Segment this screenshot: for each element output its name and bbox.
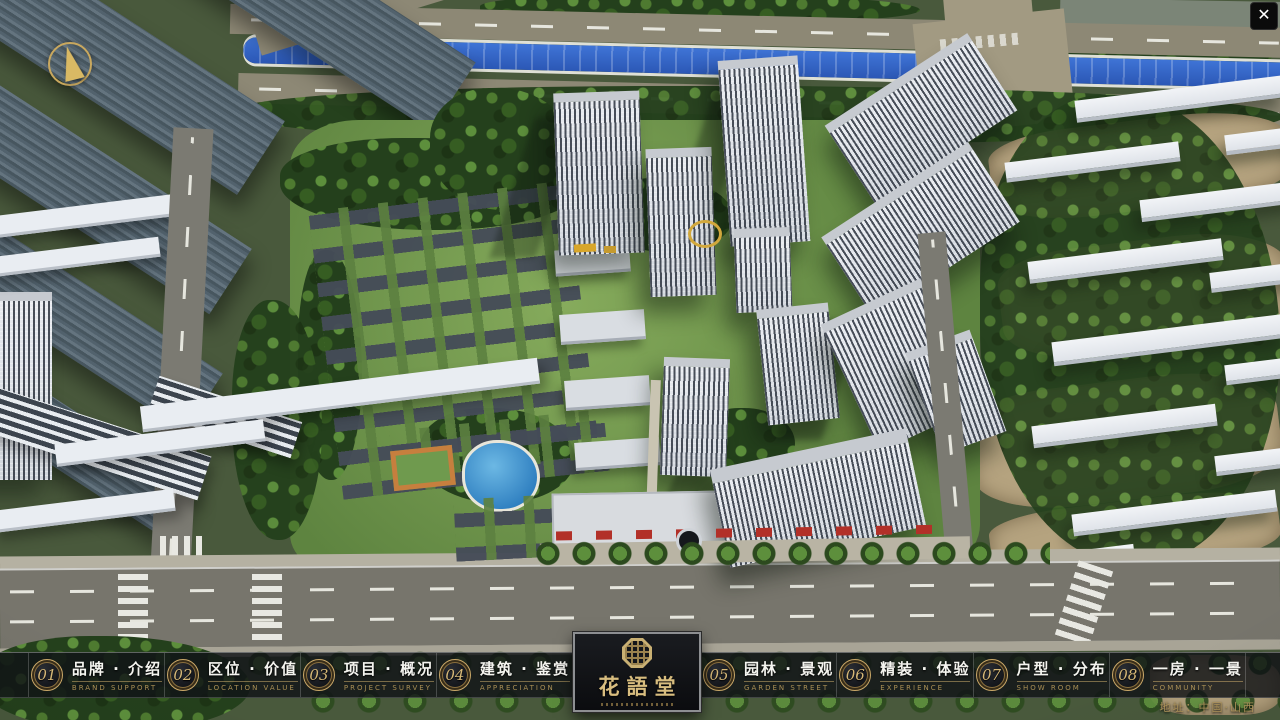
nav-number-badge: 02 (167, 659, 199, 691)
logo-seal-icon (622, 638, 652, 668)
nav-number-badge: 05 (703, 659, 735, 691)
nav-number-badge: 04 (439, 659, 471, 691)
gold-pavilion (688, 220, 722, 248)
nav-item-location-value[interactable]: 02 区位 · 价值LOCATION VALUE (165, 653, 301, 697)
nav-item-project-overview[interactable]: 03 项目 · 概况PROJECT SURVEY (301, 653, 437, 697)
nav-item-architecture-appreciation[interactable]: 04 建筑 · 鉴赏APPRECIATION (437, 653, 573, 697)
bottom-navbar: 01 品牌 · 介绍BRAND SUPPORT 02 区位 · 价值LOCATI… (0, 652, 1280, 698)
masterplan-viewport: ✕ 01 品牌 · 介绍BRAND SUPPORT 02 区位 · 价值LOCA… (0, 0, 1280, 720)
nav-number: 02 (173, 666, 192, 684)
address-text: 地址：中国·山西 (1160, 699, 1257, 715)
nav-subtitle: EXPERIENCE (880, 684, 944, 692)
logo-tagline (601, 703, 673, 706)
navbar-left-group: 01 品牌 · 介绍BRAND SUPPORT 02 区位 · 价值LOCATI… (0, 653, 573, 697)
crosswalk (160, 536, 208, 556)
mid-rise-slab (559, 309, 646, 345)
tower (718, 55, 811, 246)
nav-label: 精装 · 体验 (880, 658, 970, 682)
nav-number: 05 (710, 666, 729, 684)
nav-item-interior-experience[interactable]: 06 精装 · 体验EXPERIENCE (837, 653, 973, 697)
nav-item-room-view[interactable]: 08 一房 · 一景COMMUNITY (1110, 653, 1246, 697)
nav-number: 07 (982, 666, 1001, 684)
nav-label: 户型 · 分布 (1017, 658, 1107, 682)
nav-label: 一房 · 一景 (1153, 658, 1243, 682)
nav-subtitle: LOCATION VALUE (208, 684, 296, 692)
nav-subtitle: BRAND SUPPORT (72, 684, 157, 692)
nav-label: 建筑 · 鉴赏 (480, 658, 570, 682)
tower (734, 227, 793, 313)
crosswalk (252, 568, 282, 640)
mid-rise-slab (564, 375, 651, 411)
nav-label: 园林 · 景观 (744, 658, 834, 682)
crosswalk (118, 568, 148, 640)
navbar-right-group: 05 园林 · 景观GARDEN STREET 06 精装 · 体验EXPERI… (701, 653, 1280, 697)
building-row (0, 237, 161, 278)
nav-subtitle: APPRECIATION (480, 684, 555, 692)
nav-subtitle: COMMUNITY (1153, 684, 1214, 692)
tower (660, 357, 730, 477)
compass-icon (46, 40, 96, 90)
nav-subtitle: GARDEN STREET (744, 684, 829, 692)
sports-court (390, 445, 456, 491)
nav-number-badge: 06 (839, 659, 871, 691)
nav-label: 品牌 · 介绍 (72, 658, 162, 682)
nav-number: 08 (1118, 666, 1137, 684)
masterplan-render (0, 0, 1280, 720)
nav-number: 03 (309, 666, 328, 684)
nav-item-floorplan-distribution[interactable]: 07 户型 · 分布SHOW ROOM (974, 653, 1110, 697)
vehicle (604, 246, 616, 253)
street-trees (530, 540, 1050, 568)
nav-number-badge: 01 (31, 659, 63, 691)
nav-label: 项目 · 概况 (344, 658, 434, 682)
nav-label: 区位 · 价值 (208, 658, 298, 682)
nav-number-badge: 03 (303, 659, 335, 691)
nav-item-brand-intro[interactable]: 01 品牌 · 介绍BRAND SUPPORT (28, 653, 165, 697)
nav-number-badge: 08 (1112, 659, 1144, 691)
nav-number: 04 (445, 666, 464, 684)
nav-subtitle: PROJECT SURVEY (344, 684, 432, 692)
nav-number: 01 (37, 666, 56, 684)
nav-subtitle: SHOW ROOM (1017, 684, 1081, 692)
tower (0, 292, 52, 480)
right-district (950, 80, 1280, 580)
tower (553, 91, 645, 256)
vehicle (574, 243, 596, 252)
logo-title: 花語堂 (592, 671, 683, 701)
logo-panel[interactable]: 花語堂 (573, 632, 701, 712)
nav-item-garden-landscape[interactable]: 05 园林 · 景观GARDEN STREET (701, 653, 837, 697)
nav-number: 06 (846, 666, 865, 684)
close-button[interactable]: ✕ (1250, 2, 1278, 30)
nav-number-badge: 07 (976, 659, 1008, 691)
